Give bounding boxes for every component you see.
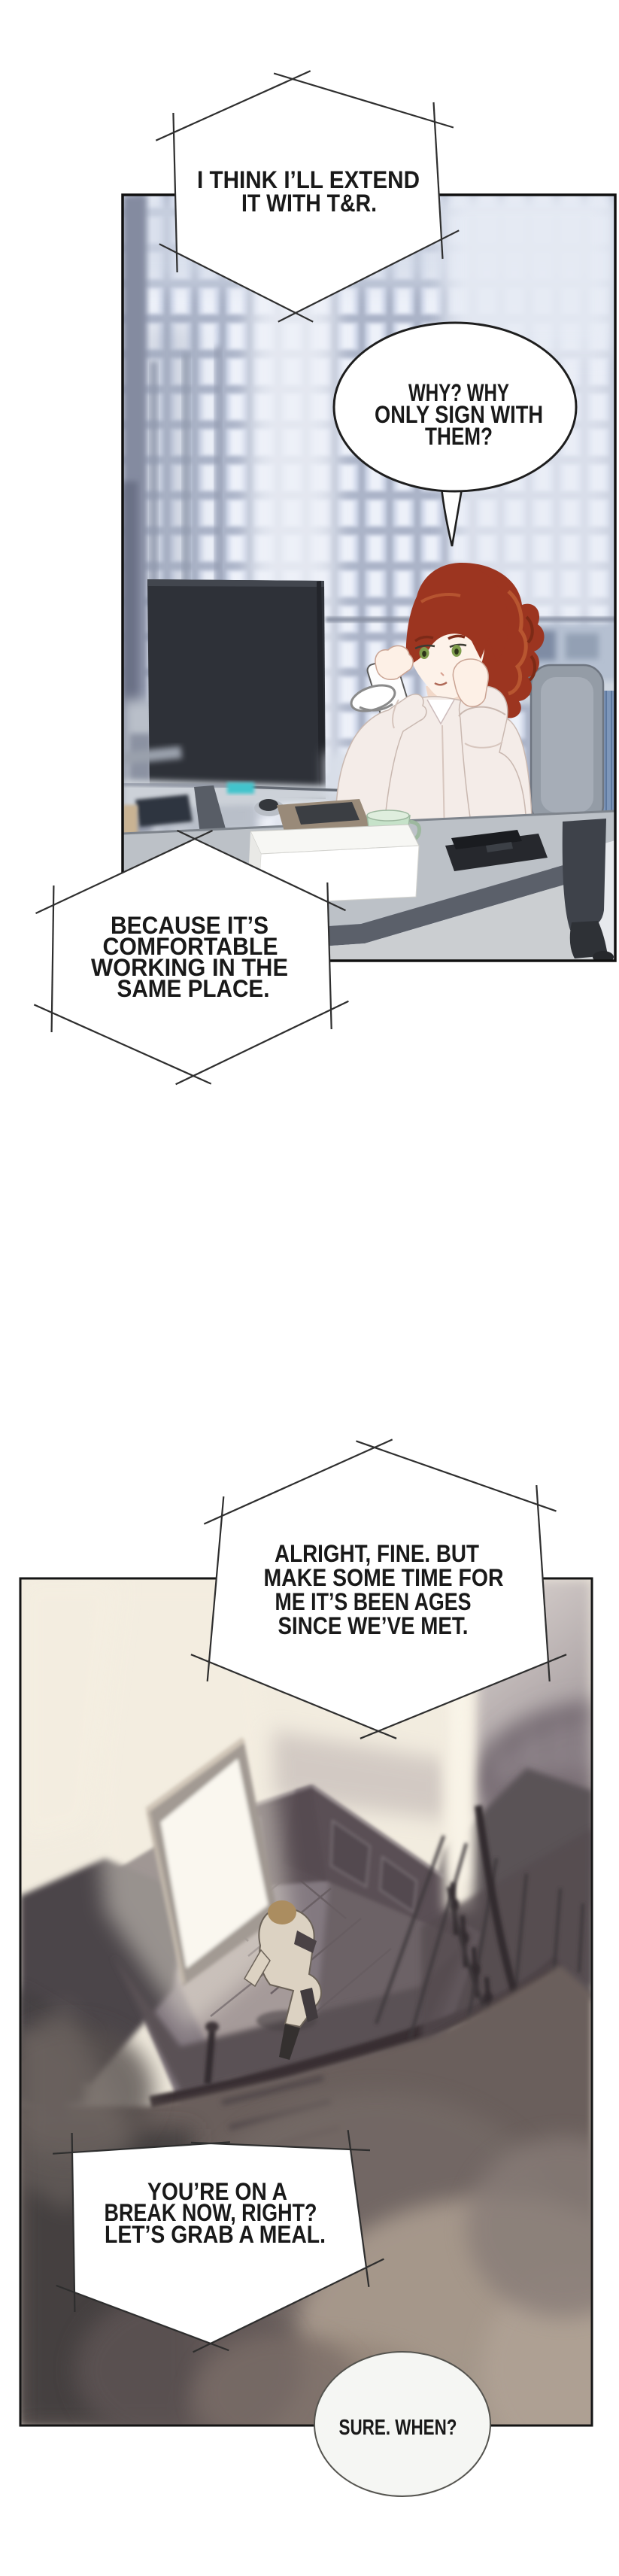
svg-text:THEM?: THEM? [425, 423, 493, 450]
svg-text:IT WITH T&R.: IT WITH T&R. [241, 190, 377, 217]
svg-text:MAKE SOME TIME FOR: MAKE SOME TIME FOR [264, 1564, 504, 1591]
svg-text:SURE. WHEN?: SURE. WHEN? [339, 2416, 457, 2440]
svg-text:SINCE WE’VE MET.: SINCE WE’VE MET. [278, 1612, 469, 1639]
svg-text:LET’S GRAB A MEAL.: LET’S GRAB A MEAL. [105, 2221, 326, 2248]
svg-text:ALRIGHT, FINE. BUT: ALRIGHT, FINE. BUT [275, 1540, 479, 1567]
svg-text:ME IT’S BEEN AGES: ME IT’S BEEN AGES [275, 1588, 472, 1615]
svg-text:SAME PLACE.: SAME PLACE. [117, 975, 270, 1002]
